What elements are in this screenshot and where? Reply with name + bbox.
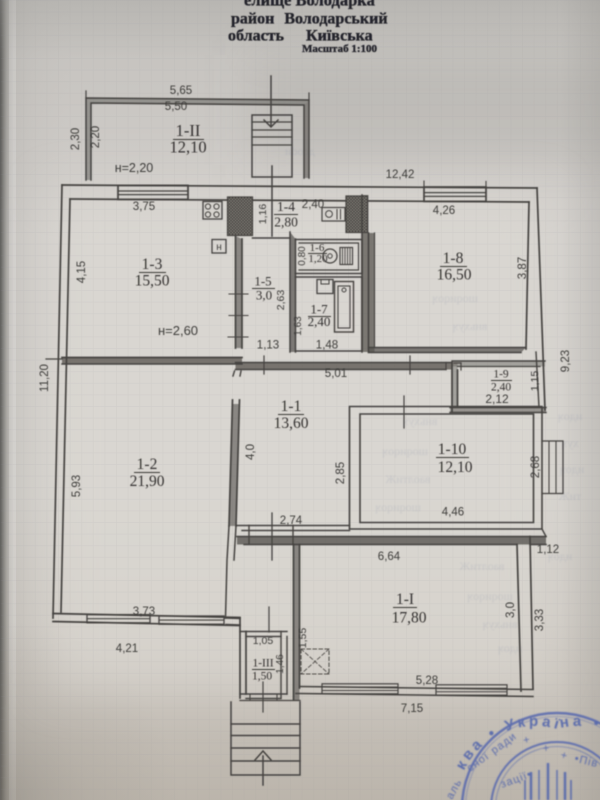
svg-text:1-4: 1-4 — [277, 199, 295, 214]
svg-text:вньхуʞ: вньхуʞ — [482, 617, 517, 631]
svg-text:21,90: 21,90 — [130, 473, 165, 490]
svg-text:идоʞ: идоʞ — [558, 409, 583, 423]
svg-text:3,73: 3,73 — [133, 606, 155, 618]
svg-text:1-2: 1-2 — [137, 456, 158, 473]
svg-text:1,63: 1,63 — [293, 316, 304, 336]
svg-text:3,0: 3,0 — [256, 288, 272, 303]
svg-text:1,12: 1,12 — [537, 544, 559, 556]
svg-text:4,21: 4,21 — [116, 643, 138, 655]
svg-text:тиЖ: тиЖ — [559, 489, 582, 503]
svg-text:н=2,20: н=2,20 — [115, 161, 154, 175]
svg-text:1,20: 1,20 — [308, 253, 328, 265]
svg-text:шоqиqоʞ: шоqиqоʞ — [375, 500, 421, 514]
svg-text:ваолтиЖ: ваолтиЖ — [459, 559, 504, 573]
svg-text:шоqиqоʞ: шоqиqоʞ — [467, 589, 513, 603]
svg-text:1-5: 1-5 — [254, 274, 271, 289]
svg-text:4,46: 4,46 — [442, 507, 464, 519]
svg-text:вньхуʞ: вньхуʞ — [402, 414, 437, 428]
svg-text:елище Володарка: елище Володарка — [244, 0, 375, 10]
svg-text:2,30: 2,30 — [70, 128, 82, 150]
svg-text:1,55: 1,55 — [297, 628, 309, 649]
svg-text:3,75: 3,75 — [133, 201, 155, 213]
svg-text:3,87: 3,87 — [517, 257, 529, 279]
svg-text:1,46: 1,46 — [275, 654, 286, 674]
svg-text:5,01: 5,01 — [325, 368, 347, 380]
svg-text:2,74: 2,74 — [280, 515, 303, 527]
svg-text:5,65: 5,65 — [170, 85, 192, 97]
svg-text:2,63: 2,63 — [275, 290, 287, 311]
svg-text:н: н — [216, 242, 222, 253]
svg-text:ваолтиЖ: ваолтиЖ — [385, 472, 430, 486]
svg-text:1,16: 1,16 — [257, 204, 269, 225]
svg-text:15,50: 15,50 — [135, 273, 170, 290]
svg-text:вньхуʞ: вньхуʞ — [452, 319, 487, 333]
svg-text:12,42: 12,42 — [386, 169, 415, 181]
svg-text:1-III: 1-III — [252, 658, 273, 670]
svg-text:1-1: 1-1 — [281, 398, 302, 415]
svg-text:1,48: 1,48 — [316, 340, 338, 352]
svg-text:1,15: 1,15 — [529, 371, 541, 392]
svg-text:1,13: 1,13 — [257, 340, 279, 352]
svg-text:2,40: 2,40 — [491, 382, 511, 394]
svg-text:2,85: 2,85 — [335, 462, 347, 484]
svg-text:2,12: 2,12 — [485, 392, 509, 406]
svg-text:шоqиqоʞ: шоqиqоʞ — [432, 291, 478, 305]
svg-text:7,15: 7,15 — [401, 703, 423, 715]
svg-text:районВолодарський: районВолодарський — [231, 11, 388, 28]
svg-text:3,33: 3,33 — [534, 609, 546, 631]
svg-text:2,80: 2,80 — [274, 215, 298, 230]
svg-text:3,0: 3,0 — [505, 602, 517, 618]
svg-text:дcodи: дcodи — [284, 144, 314, 158]
svg-text:хуʞ: хуʞ — [561, 436, 579, 450]
svg-text:1-10: 1-10 — [438, 441, 467, 458]
svg-text:11,20: 11,20 — [39, 364, 51, 392]
svg-text:5,93: 5,93 — [71, 475, 83, 497]
svg-text:1-8: 1-8 — [443, 250, 464, 267]
svg-text:5,28: 5,28 — [416, 675, 438, 687]
svg-text:5,50: 5,50 — [165, 101, 187, 113]
svg-text:12,10: 12,10 — [438, 459, 473, 476]
svg-text:4,0: 4,0 — [245, 444, 257, 460]
svg-text:н=2,60: н=2,60 — [158, 323, 198, 338]
svg-text:Масштаб 1:100: Масштаб 1:100 — [302, 43, 378, 55]
svg-text:1-9: 1-9 — [493, 369, 509, 381]
svg-text:4,26: 4,26 — [433, 205, 455, 217]
svg-text:0,80: 0,80 — [297, 246, 308, 266]
svg-text:12,10: 12,10 — [169, 138, 206, 157]
svg-text:2,20: 2,20 — [90, 126, 102, 148]
svg-text:2,68: 2,68 — [530, 456, 542, 478]
svg-text:9,23: 9,23 — [560, 350, 572, 372]
svg-text:6,64: 6,64 — [378, 551, 401, 563]
svg-text:1,05: 1,05 — [253, 635, 274, 647]
svg-text:16,50: 16,50 — [437, 267, 472, 284]
svg-text:+: + — [542, 742, 550, 755]
svg-text:1,50: 1,50 — [252, 671, 272, 683]
svg-text:1-3: 1-3 — [142, 256, 163, 273]
svg-text:17,80: 17,80 — [392, 610, 427, 627]
svg-text:4,15: 4,15 — [76, 261, 88, 283]
svg-text:13,60: 13,60 — [274, 415, 309, 432]
svg-text:идоʞ: идоʞ — [498, 641, 523, 655]
svg-text:шоqиqоʞ: шоqиqоʞ — [382, 444, 428, 458]
svg-text:1-I: 1-I — [396, 591, 414, 608]
svg-text:2,40: 2,40 — [302, 199, 324, 211]
